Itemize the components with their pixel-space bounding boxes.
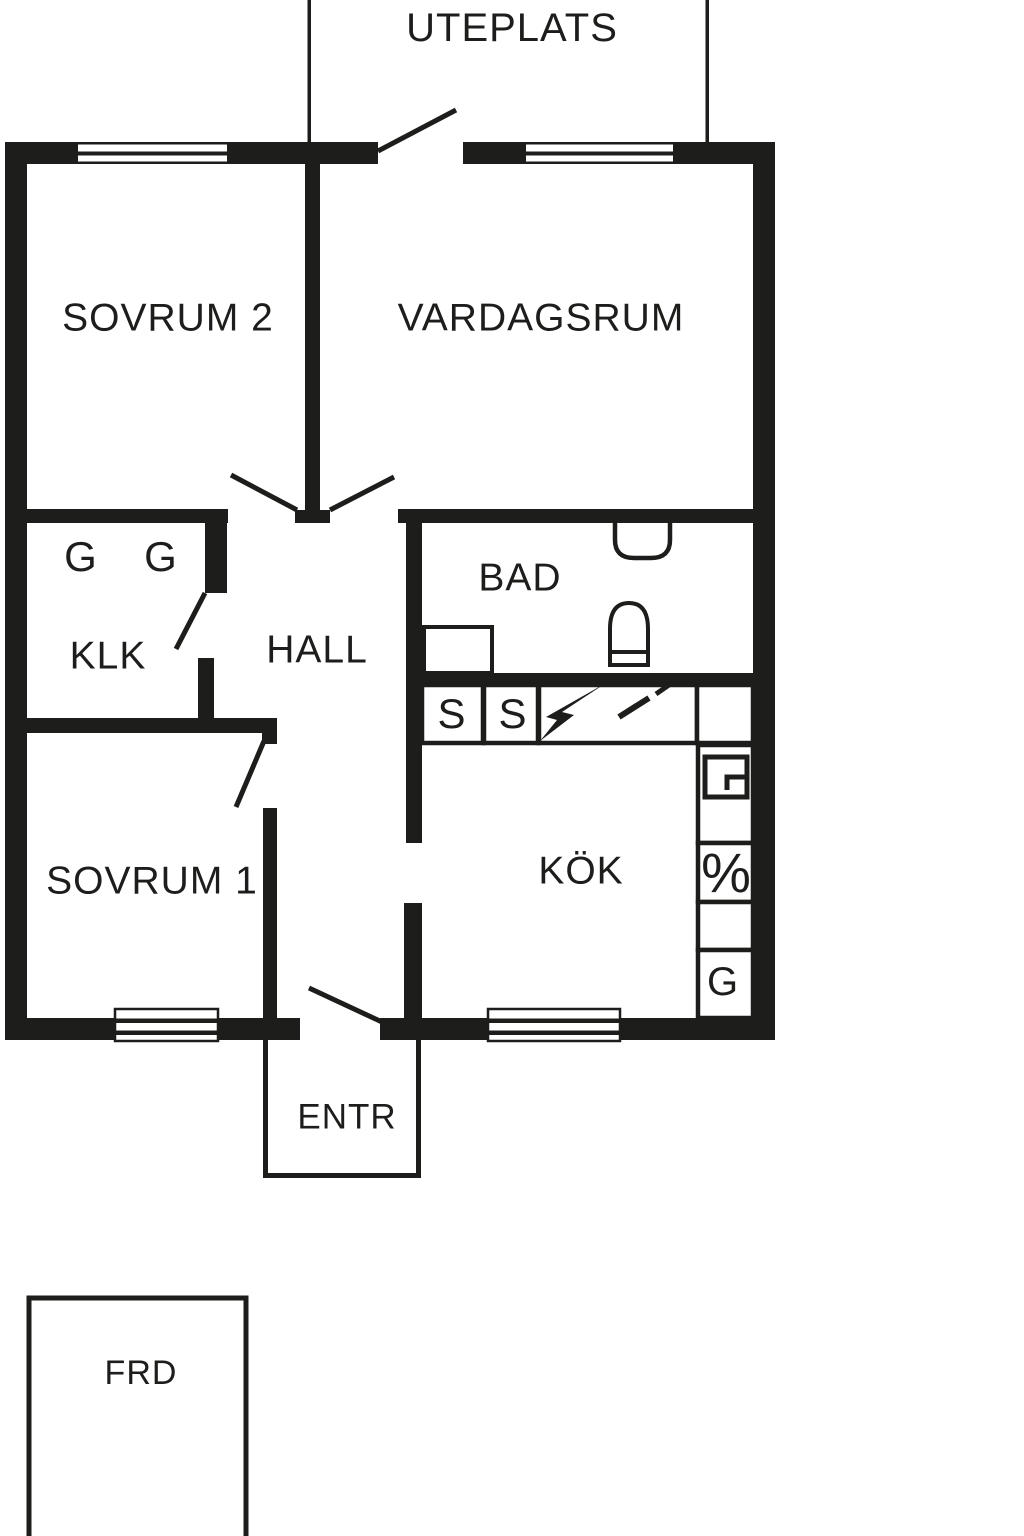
cabinet-label-2: S <box>498 693 527 735</box>
uteplats-boundary-left <box>308 0 312 142</box>
wall-klk-right-upper <box>205 520 227 593</box>
fridge-label: G <box>707 962 739 1002</box>
window-vardagsrum-mullion <box>526 152 673 156</box>
window-sovrum1-mullion-1 <box>115 1019 218 1024</box>
counter-box <box>698 902 753 950</box>
wall-kok-left-upper <box>406 685 422 843</box>
wall-sovrum1-right <box>263 808 277 1018</box>
room-label-klk: KLK <box>70 637 147 676</box>
window-kok-glass <box>488 1009 620 1041</box>
washbasin-icon <box>615 523 670 558</box>
toilet-icon <box>610 603 648 665</box>
floor-plan-drawing <box>0 0 1024 1536</box>
door-swing-uteplats <box>378 110 456 151</box>
wall-kok-left-lower <box>404 903 422 1018</box>
wall-klk-right-lower <box>198 658 214 720</box>
wall-bad-left <box>406 523 422 685</box>
window-kok-mullion-2 <box>488 1031 620 1036</box>
uteplats-boundary-right <box>706 0 710 142</box>
room-label-uteplats: UTEPLATS <box>406 8 618 48</box>
room-label-entr: ENTR <box>297 1100 396 1135</box>
window-sovrum1-mullion-2 <box>115 1031 218 1036</box>
wall-bad-top <box>398 509 753 523</box>
wall-right <box>753 142 775 1040</box>
toilet-bowl <box>610 603 648 665</box>
stove-symbol-label: % <box>701 845 751 901</box>
window-sovrum1-glass <box>115 1009 218 1041</box>
frd-outline <box>29 1298 246 1536</box>
cabinet-label-1: S <box>437 693 466 735</box>
wall-left <box>5 142 27 1040</box>
window-sovrum2-mullion <box>78 152 227 156</box>
door-swing-sovrum1 <box>236 741 264 807</box>
wardrobe-label-1: G <box>64 536 98 578</box>
door-swing-vardagsrum <box>330 477 394 510</box>
room-label-kok: KÖK <box>538 852 623 891</box>
room-label-frd: FRD <box>105 1356 178 1390</box>
window-kok-mullion-1 <box>488 1019 620 1024</box>
window-sovrum1 <box>115 1009 218 1041</box>
door-swing-klk <box>176 593 205 649</box>
door-swing-entr <box>309 988 382 1022</box>
door-swing-sovrum2 <box>231 475 297 510</box>
wall-closet-top <box>27 509 228 523</box>
wardrobe-label-2: G <box>144 536 178 578</box>
room-label-bad: BAD <box>478 559 561 598</box>
window-sovrum2 <box>78 145 227 162</box>
room-label-hall: HALL <box>266 631 368 670</box>
wall-klk-bottom <box>27 718 277 733</box>
wall-divider-foot <box>295 510 330 523</box>
wall-sovrum2-vardagsrum <box>305 160 320 512</box>
room-label-vardagsrum: VARDAGSRUM <box>398 299 685 338</box>
window-vardagsrum <box>526 145 673 162</box>
counter-end-box <box>697 685 753 743</box>
floor-plan: UTEPLATS SOVRUM 2 VARDAGSRUM KLK HALL BA… <box>0 0 1024 1536</box>
room-label-sovrum2: SOVRUM 2 <box>62 299 274 338</box>
room-label-sovrum1: SOVRUM 1 <box>46 862 258 901</box>
window-kok <box>488 1009 620 1041</box>
shower-box <box>424 627 492 673</box>
